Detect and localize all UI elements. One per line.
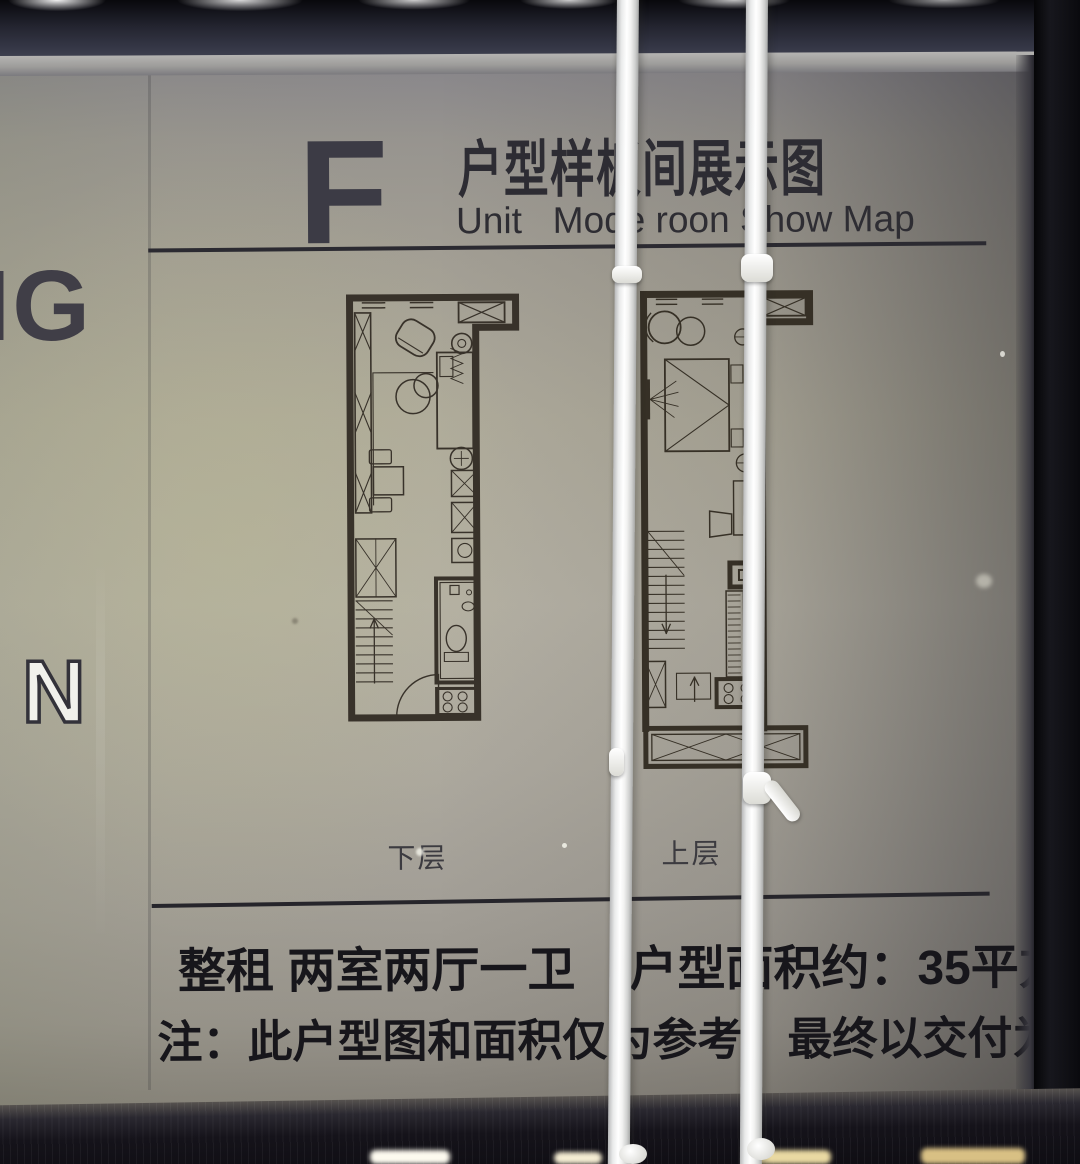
panel-right-bevel	[1016, 55, 1036, 1115]
cable-tie-buckle	[609, 748, 624, 776]
signboard-photo: NG N F 户型样板间展示图 Unit Mode roon Show Map	[0, 0, 1080, 1164]
cable-tie-joint	[612, 266, 642, 283]
panel-stain	[562, 843, 567, 848]
cable-tie-joint	[741, 254, 773, 282]
sign-title-english: Unit Mode roon Show Map	[456, 200, 915, 239]
panel-stain	[416, 848, 424, 856]
panel-stain	[292, 618, 298, 624]
panel-stain	[976, 574, 992, 588]
lease-type-text: 整租 两室两厅一卫	[178, 930, 576, 1002]
unit-letter: F	[298, 119, 389, 267]
sign-content: F 户型样板间展示图 Unit Mode roon Show Map	[0, 0, 1080, 1164]
floor-plan-upper	[630, 282, 829, 783]
frame-top-band	[0, 0, 1080, 58]
lower-floor-label: 下层	[387, 836, 447, 876]
frame-right-band	[1034, 0, 1080, 1164]
upper-floor-label: 上层	[661, 832, 721, 872]
cable-tie-end	[747, 1138, 775, 1160]
panel-streak	[96, 560, 105, 990]
reflection-glow	[370, 1150, 450, 1164]
title-divider-line	[148, 241, 986, 252]
unit-area-text: 户型面积约：35平方米	[629, 927, 1080, 1000]
sign-title-chinese: 户型样板间展示图	[458, 138, 827, 202]
floor-plan-lower	[332, 286, 526, 735]
cable-tie-end	[619, 1144, 647, 1164]
panel-stain	[1000, 351, 1005, 357]
info-divider-line	[152, 892, 990, 908]
reflection-glow	[554, 1152, 602, 1164]
reflection-glow	[921, 1148, 1025, 1164]
